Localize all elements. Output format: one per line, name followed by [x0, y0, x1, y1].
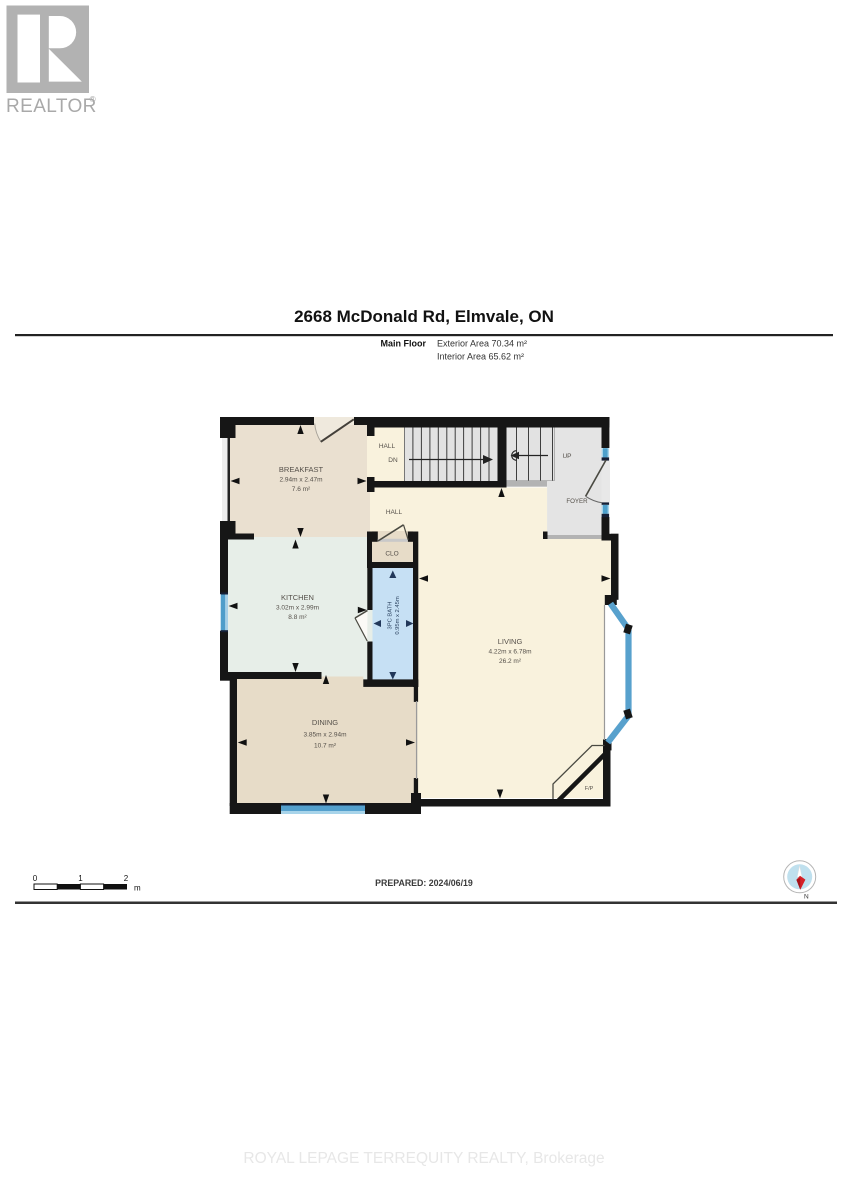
svg-text:HALL: HALL	[379, 443, 396, 450]
svg-text:0: 0	[33, 874, 38, 883]
svg-text:LIVING: LIVING	[498, 637, 523, 646]
svg-text:3PC BATH: 3PC BATH	[388, 602, 394, 630]
svg-text:DINING: DINING	[312, 718, 338, 727]
svg-text:2668 McDonald Rd, Elmvale, ON: 2668 McDonald Rd, Elmvale, ON	[294, 307, 554, 326]
svg-text:PREPARED: 2024/06/19: PREPARED: 2024/06/19	[375, 878, 473, 888]
svg-text:Interior Area 65.62 m²: Interior Area 65.62 m²	[437, 352, 524, 362]
svg-text:REALTOR: REALTOR	[6, 96, 97, 117]
svg-text:CLO: CLO	[385, 551, 398, 558]
svg-text:HALL: HALL	[386, 509, 403, 516]
svg-text:m: m	[134, 884, 141, 893]
svg-text:Exterior Area 70.34 m²: Exterior Area 70.34 m²	[437, 339, 527, 349]
svg-text:3.85m x 2.94m: 3.85m x 2.94m	[304, 732, 347, 739]
svg-text:FOYER: FOYER	[566, 498, 588, 505]
svg-text:KITCHEN: KITCHEN	[281, 593, 314, 602]
svg-text:BREAKFAST: BREAKFAST	[279, 465, 324, 474]
svg-text:Main Floor: Main Floor	[381, 339, 427, 349]
svg-text:7.6 m²: 7.6 m²	[292, 486, 311, 493]
svg-text:ROYAL LEPAGE TERREQUITY REALTY: ROYAL LEPAGE TERREQUITY REALTY, Brokerag…	[243, 1150, 604, 1167]
svg-text:0.95m x 2.45m: 0.95m x 2.45m	[395, 596, 401, 635]
svg-text:3.02m x 2.99m: 3.02m x 2.99m	[276, 605, 319, 612]
svg-text:®: ®	[90, 94, 97, 104]
svg-text:2.94m x 2.47m: 2.94m x 2.47m	[280, 477, 323, 484]
svg-text:4.22m x 6.78m: 4.22m x 6.78m	[489, 649, 532, 656]
svg-text:8.8 m²: 8.8 m²	[288, 614, 307, 621]
svg-text:26.2 m²: 26.2 m²	[499, 658, 522, 665]
svg-text:N: N	[804, 894, 809, 901]
svg-text:F/P: F/P	[585, 786, 594, 792]
svg-text:1: 1	[78, 874, 83, 883]
svg-text:DN: DN	[388, 457, 398, 464]
svg-text:2: 2	[124, 874, 129, 883]
svg-text:10.7 m²: 10.7 m²	[314, 743, 337, 750]
svg-text:UP: UP	[562, 453, 571, 460]
